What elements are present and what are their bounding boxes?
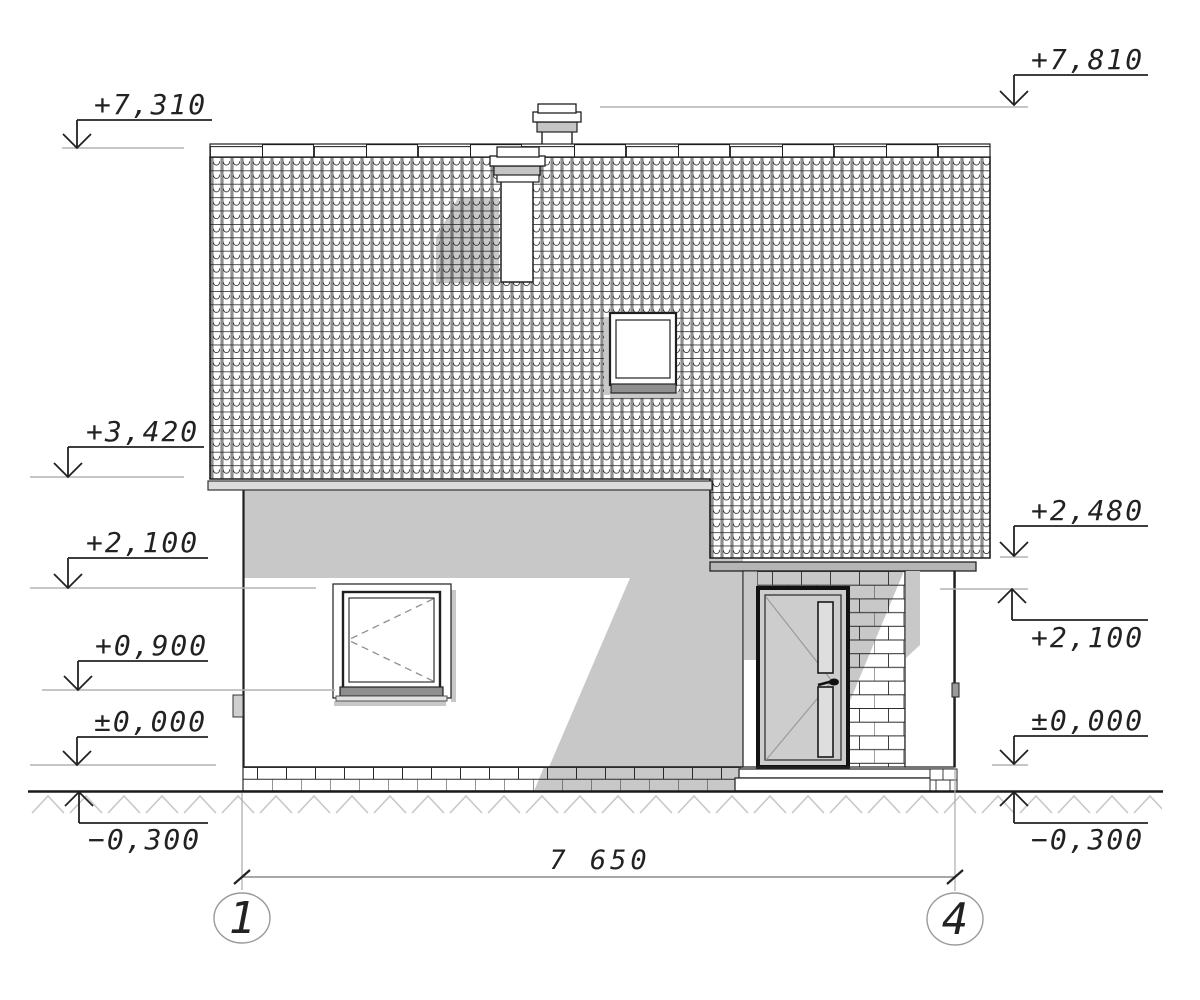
downspout — [952, 683, 959, 697]
entrance-step — [735, 769, 957, 791]
door-glass-panel-bottom — [818, 687, 833, 757]
window-bottom-shadow — [334, 701, 446, 706]
level-marker-left-ridge: +7,310 — [62, 88, 212, 148]
level-marker-right-lintel: +2,100 — [940, 589, 1148, 654]
level-label: +7,310 — [94, 88, 207, 121]
rear-chimney — [533, 104, 581, 146]
level-label: +2,480 — [1031, 494, 1144, 527]
main-wall — [233, 490, 743, 767]
roof-window — [604, 313, 680, 398]
level-label: +2,100 — [86, 526, 199, 559]
level-label: ±0,000 — [1031, 704, 1144, 737]
level-marker-right-chimney-top: +7,810 — [600, 43, 1148, 107]
level-marker-left-eaves: +3,420 — [30, 415, 204, 477]
roof-window-sill — [611, 384, 676, 393]
elevation-drawing: +7,310 +3,420 +2,100 +0,900 ±0,000 −0,30… — [0, 0, 1200, 1000]
level-label: +2,100 — [1031, 621, 1144, 654]
front-chimney-body — [501, 180, 533, 282]
step-upper — [739, 769, 953, 778]
facade-window — [333, 584, 456, 706]
window-side-shadow — [451, 590, 456, 702]
roof-window-pane — [616, 320, 670, 378]
level-label: −0,300 — [88, 823, 201, 856]
ridge-cap-pattern — [210, 144, 990, 157]
front-chimney-cap-top — [497, 147, 539, 157]
step-lower — [735, 778, 953, 791]
window-pane — [349, 598, 434, 682]
level-marker-right-porch-eaves: +2,480 — [1000, 494, 1148, 557]
plinth-brick-pattern — [243, 767, 740, 791]
dimension-label: 7 650 — [549, 845, 650, 876]
entrance-door — [756, 588, 850, 767]
left-eave-fascia — [208, 481, 712, 490]
window-sill-lip — [336, 696, 447, 701]
level-label: +7,810 — [1031, 43, 1144, 76]
level-marker-right-floor: ±0,000 — [992, 704, 1148, 765]
door-frame — [758, 588, 848, 767]
level-label: ±0,000 — [94, 705, 207, 738]
level-marker-left-floor: ±0,000 — [30, 705, 216, 765]
front-chimney-band — [494, 166, 540, 175]
porch-side-wall-shadow — [906, 571, 920, 658]
eave-shadow-band — [244, 490, 743, 578]
downspout-bracket — [233, 695, 243, 717]
ground-hatch — [30, 793, 1162, 818]
rear-chimney-cap-top — [538, 104, 576, 113]
porch-post-shadow — [744, 572, 757, 660]
door-handle-icon — [829, 679, 839, 686]
porch-eave-fascia — [710, 562, 976, 571]
entrance-porch — [735, 571, 959, 791]
ground — [28, 792, 1163, 819]
level-label: +0,900 — [95, 629, 208, 662]
plinth — [243, 767, 740, 791]
axis-label-4: 4 — [942, 894, 969, 945]
axis-label-1: 1 — [229, 893, 256, 944]
door-glass-panel-top — [818, 602, 833, 673]
window-sill — [340, 687, 443, 696]
rear-chimney-band — [537, 122, 577, 132]
level-label: −0,300 — [1031, 823, 1144, 856]
elevation-sheet: +7,310 +3,420 +2,100 +0,900 ±0,000 −0,30… — [0, 0, 1200, 1000]
level-label: +3,420 — [86, 415, 199, 448]
